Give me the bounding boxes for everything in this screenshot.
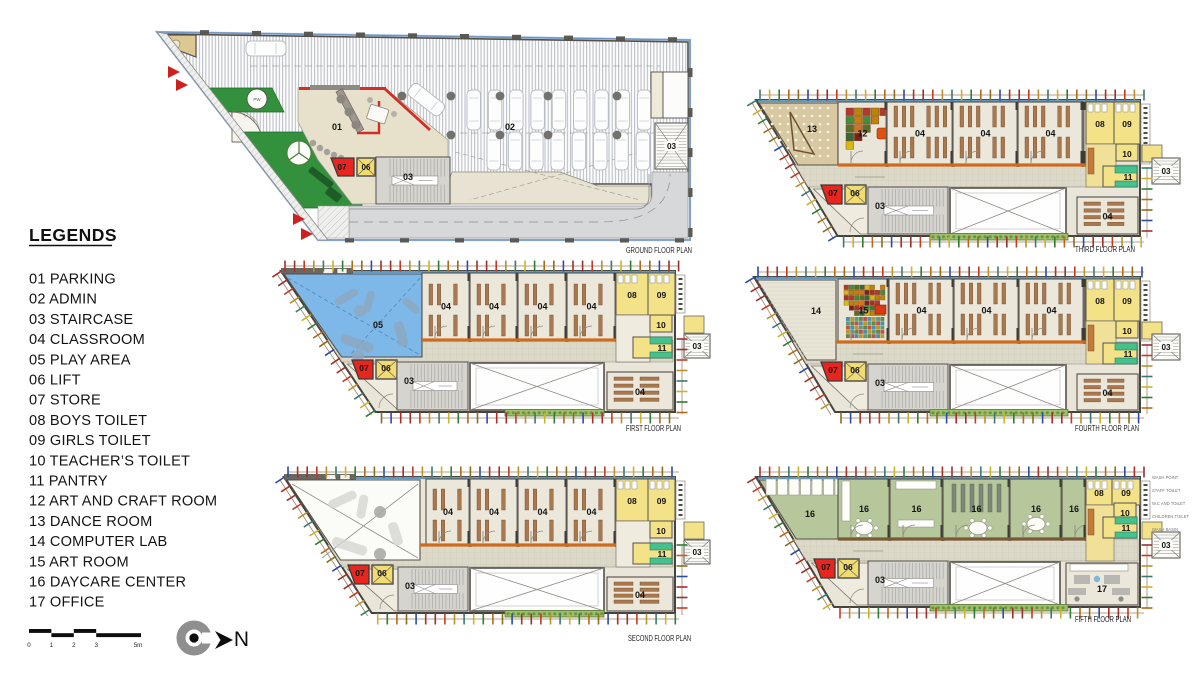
svg-text:10: 10: [1122, 326, 1132, 336]
svg-text:08: 08: [1095, 119, 1105, 129]
svg-text:08 BOYS TOILET: 08 BOYS TOILET: [29, 413, 147, 429]
svg-text:11: 11: [1124, 349, 1133, 359]
svg-text:0: 0: [27, 642, 31, 649]
svg-text:01: 01: [332, 122, 342, 132]
svg-text:01 PARKING: 01 PARKING: [29, 272, 116, 288]
svg-text:04: 04: [443, 507, 453, 517]
svg-text:WASH BASIN: WASH BASIN: [1152, 527, 1178, 532]
svg-text:09: 09: [657, 496, 667, 506]
svg-text:12 ART AND CRAFT ROOM: 12 ART AND CRAFT ROOM: [29, 494, 217, 510]
svg-text:05: 05: [373, 320, 383, 330]
svg-text:03: 03: [875, 378, 885, 388]
svg-text:04: 04: [635, 590, 645, 600]
svg-text:04: 04: [1045, 129, 1055, 139]
svg-text:09: 09: [1122, 119, 1132, 129]
svg-text:5m: 5m: [134, 642, 143, 649]
svg-text:03: 03: [1161, 541, 1171, 550]
svg-text:10: 10: [656, 526, 666, 536]
svg-text:07: 07: [828, 365, 838, 375]
svg-text:WASH POINT: WASH POINT: [1152, 475, 1179, 480]
svg-text:04: 04: [635, 387, 645, 397]
svg-text:W.C AND TOILET: W.C AND TOILET: [1152, 501, 1186, 506]
svg-text:04: 04: [916, 306, 926, 316]
svg-text:11: 11: [658, 343, 667, 353]
svg-text:10: 10: [656, 320, 666, 330]
svg-text:11: 11: [1124, 172, 1133, 182]
svg-text:07: 07: [359, 363, 369, 373]
svg-text:06: 06: [381, 363, 391, 373]
svg-text:LEGENDS: LEGENDS: [29, 225, 117, 245]
svg-text:04: 04: [915, 129, 925, 139]
svg-text:11: 11: [1122, 523, 1131, 533]
svg-text:13 DANCE ROOM: 13 DANCE ROOM: [29, 514, 152, 530]
svg-text:04: 04: [489, 507, 499, 517]
svg-text:14 COMPUTER LAB: 14 COMPUTER LAB: [29, 534, 167, 550]
svg-text:15 ART ROOM: 15 ART ROOM: [29, 554, 129, 570]
svg-text:2: 2: [72, 642, 76, 649]
svg-text:09 GIRLS TOILET: 09 GIRLS TOILET: [29, 433, 151, 449]
svg-text:04: 04: [586, 507, 596, 517]
svg-text:07 STORE: 07 STORE: [29, 393, 101, 409]
svg-text:03: 03: [403, 172, 413, 182]
svg-text:04: 04: [1046, 306, 1056, 316]
svg-text:16: 16: [1031, 504, 1041, 514]
svg-text:09: 09: [657, 290, 667, 300]
svg-text:08: 08: [1094, 488, 1104, 498]
svg-text:04: 04: [1102, 388, 1112, 398]
svg-text:07: 07: [828, 188, 838, 198]
svg-text:08: 08: [627, 496, 637, 506]
svg-text:16: 16: [1069, 504, 1079, 514]
svg-text:16: 16: [859, 504, 869, 514]
svg-text:06: 06: [362, 163, 371, 172]
svg-text:06 LIFT: 06 LIFT: [29, 373, 81, 389]
svg-text:11 PANTRY: 11 PANTRY: [29, 474, 108, 490]
svg-text:03 STAIRCASE: 03 STAIRCASE: [29, 312, 133, 328]
svg-text:03: 03: [405, 581, 415, 591]
svg-text:06: 06: [850, 365, 860, 375]
svg-text:07: 07: [338, 163, 347, 172]
svg-text:04 CLASSROOM: 04 CLASSROOM: [29, 332, 145, 348]
svg-text:FIRST FLOOR PLAN: FIRST FLOOR PLAN: [626, 424, 681, 433]
svg-text:02 ADMIN: 02 ADMIN: [29, 292, 97, 308]
svg-text:16: 16: [911, 504, 921, 514]
svg-text:16 DAYCARE CENTER: 16 DAYCARE CENTER: [29, 575, 186, 591]
svg-text:3: 3: [94, 642, 98, 649]
svg-text:06: 06: [377, 568, 387, 578]
svg-text:FOURTH FLOOR PLAN: FOURTH FLOOR PLAN: [1075, 424, 1139, 433]
svg-text:PW: PW: [253, 97, 261, 102]
svg-text:GROUND FLOOR PLAN: GROUND FLOOR PLAN: [626, 246, 692, 255]
svg-text:04: 04: [441, 302, 451, 312]
svg-text:11: 11: [658, 549, 667, 559]
svg-text:1: 1: [50, 642, 54, 649]
svg-text:06: 06: [850, 188, 860, 198]
svg-text:08: 08: [1095, 296, 1105, 306]
svg-text:N: N: [234, 628, 249, 651]
svg-text:SECOND FLOOR PLAN: SECOND FLOOR PLAN: [628, 634, 691, 643]
svg-text:15: 15: [858, 306, 868, 316]
svg-text:04: 04: [981, 306, 991, 316]
svg-text:04: 04: [537, 507, 547, 517]
svg-text:06: 06: [843, 562, 853, 572]
svg-text:03: 03: [692, 548, 702, 557]
svg-text:12: 12: [857, 129, 867, 139]
svg-text:16: 16: [805, 509, 815, 519]
svg-text:03: 03: [875, 201, 885, 211]
svg-text:CHILDREN TOILET: CHILDREN TOILET: [1152, 514, 1190, 519]
svg-text:10 TEACHER’S TOILET: 10 TEACHER’S TOILET: [29, 453, 190, 469]
svg-text:13: 13: [807, 124, 817, 134]
svg-text:03: 03: [1161, 343, 1171, 352]
svg-text:07: 07: [821, 562, 831, 572]
svg-text:04: 04: [489, 302, 499, 312]
svg-text:03: 03: [667, 142, 677, 151]
svg-text:14: 14: [811, 306, 821, 316]
svg-text:03: 03: [692, 342, 702, 351]
svg-text:08: 08: [627, 290, 637, 300]
svg-text:16: 16: [971, 504, 981, 514]
svg-text:17 OFFICE: 17 OFFICE: [29, 595, 105, 611]
svg-text:STAFF TOILET: STAFF TOILET: [1152, 488, 1181, 493]
svg-text:03: 03: [404, 376, 414, 386]
svg-text:03: 03: [875, 575, 885, 585]
svg-text:04: 04: [537, 302, 547, 312]
svg-text:FIFTH FLOOR PLAN: FIFTH FLOOR PLAN: [1075, 615, 1131, 624]
svg-text:07: 07: [355, 568, 365, 578]
svg-text:04: 04: [980, 129, 990, 139]
svg-text:04: 04: [1102, 212, 1112, 222]
svg-text:02: 02: [505, 122, 515, 132]
svg-text:05 PLAY AREA: 05 PLAY AREA: [29, 352, 131, 368]
svg-text:THIRD FLOOR PLAN: THIRD FLOOR PLAN: [1075, 245, 1135, 254]
svg-text:09: 09: [1122, 296, 1132, 306]
svg-text:03: 03: [1161, 167, 1171, 176]
svg-text:17: 17: [1097, 584, 1107, 594]
svg-text:04: 04: [586, 302, 596, 312]
svg-text:09: 09: [1121, 488, 1131, 498]
svg-text:10: 10: [1122, 149, 1132, 159]
